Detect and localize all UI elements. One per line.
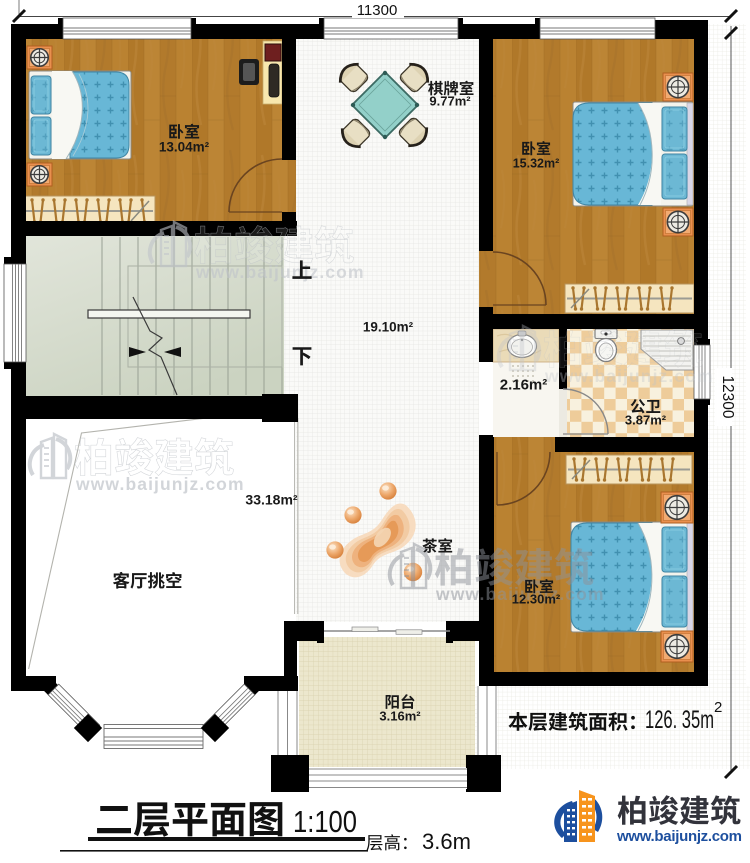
svg-text:www.baijunjz.com: www.baijunjz.com [195, 262, 365, 282]
svg-text:www.baijunjz.com: www.baijunjz.com [616, 828, 742, 845]
svg-text:1:100: 1:100 [293, 804, 357, 839]
svg-text:3.6m: 3.6m [422, 829, 471, 854]
svg-text:13.04m²: 13.04m² [159, 140, 210, 155]
svg-text:15.32m²: 15.32m² [513, 157, 560, 171]
svg-text:2: 2 [714, 699, 722, 716]
svg-text:12.30m²: 12.30m² [512, 592, 561, 607]
svg-text:11300: 11300 [357, 2, 398, 19]
svg-text:9.77m²: 9.77m² [429, 94, 471, 109]
svg-text:2.16m²: 2.16m² [500, 377, 548, 394]
svg-text:12300: 12300 [719, 375, 736, 418]
svg-text:www.baijunjz.com: www.baijunjz.com [75, 474, 245, 494]
svg-text:www.baijunjz.com: www.baijunjz.com [544, 366, 714, 386]
svg-text:126. 35m: 126. 35m [645, 706, 714, 734]
svg-text:19.10m²: 19.10m² [363, 320, 414, 335]
svg-text:33.18m²: 33.18m² [245, 492, 297, 508]
svg-text:3.16m²: 3.16m² [379, 709, 421, 724]
svg-text:3.87m²: 3.87m² [625, 413, 667, 428]
